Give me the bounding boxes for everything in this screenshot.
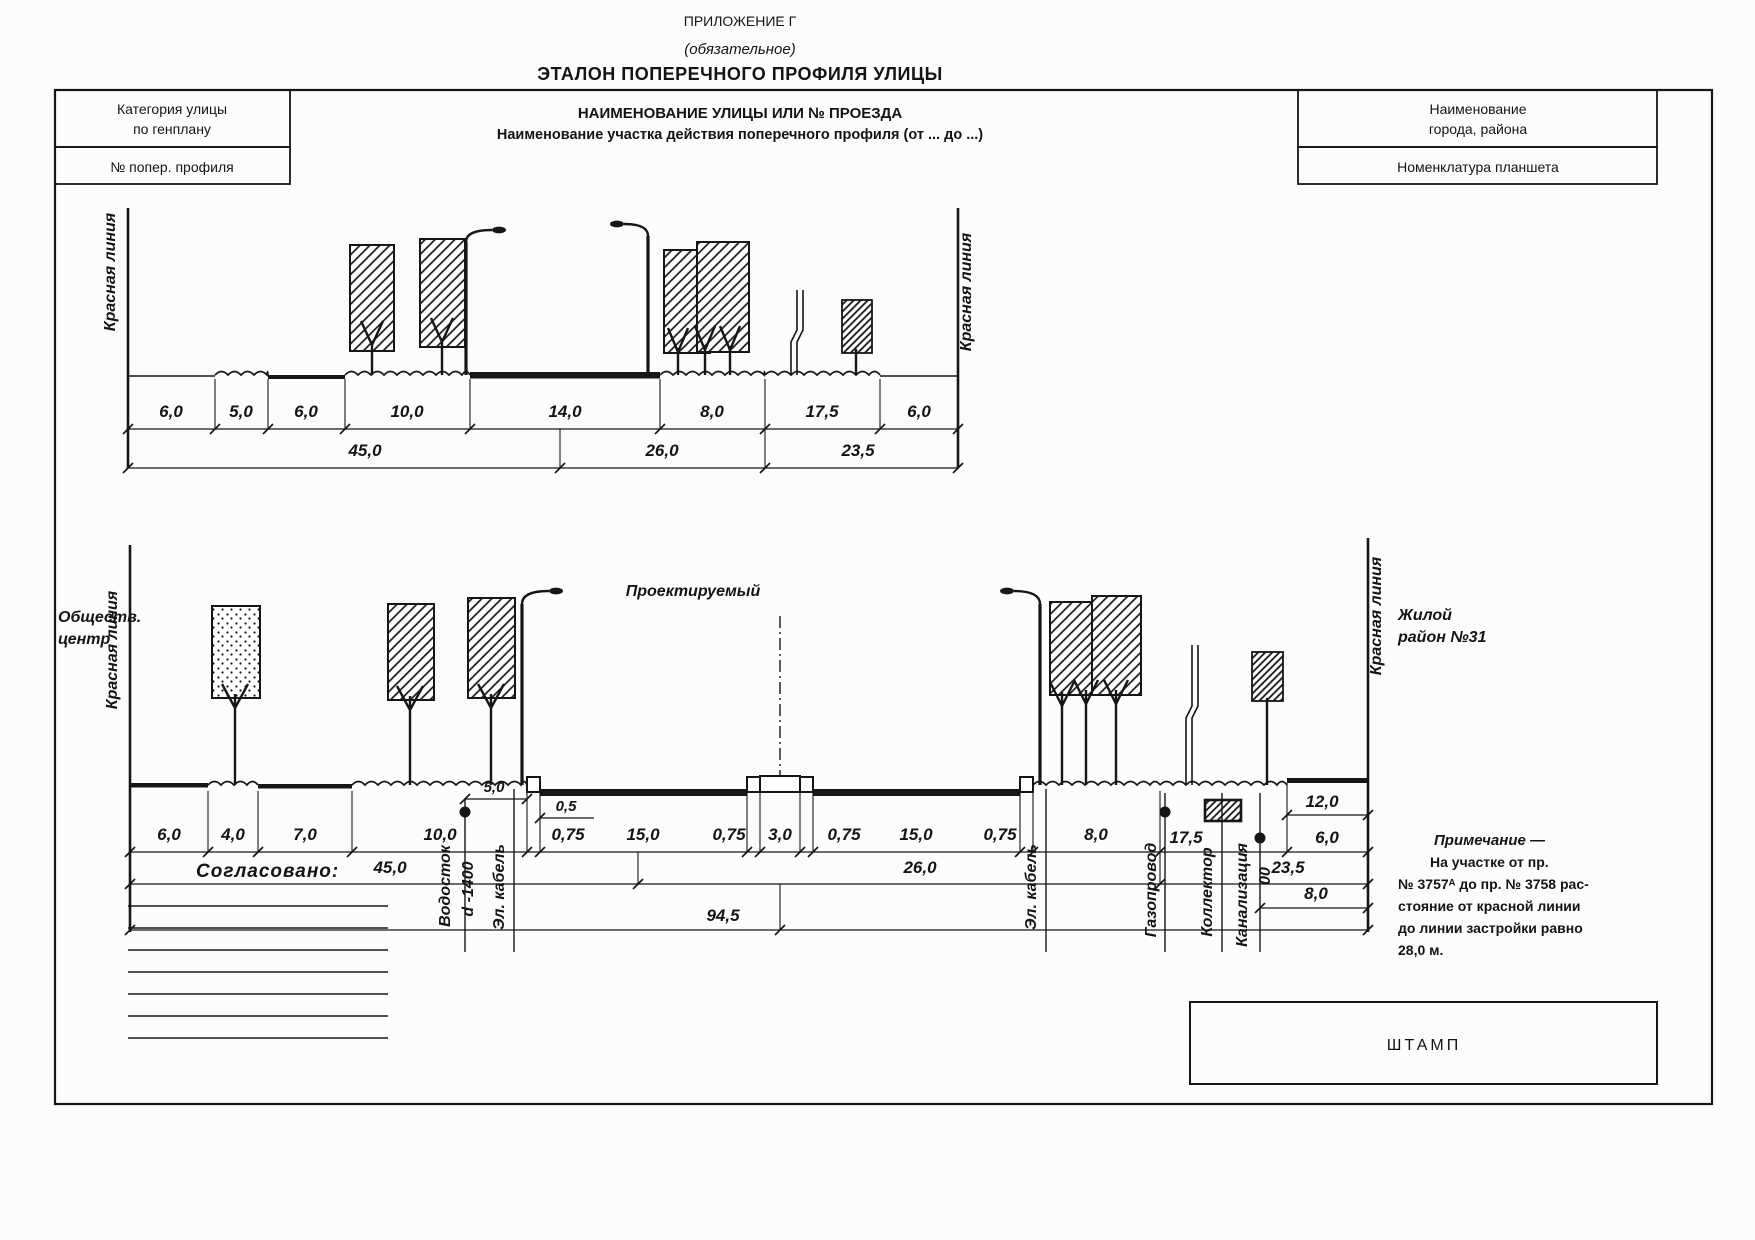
dim-label: 6,0 (157, 825, 181, 844)
dim-label: 10,0 (390, 402, 424, 421)
electric-cable-label: Эл. кабель (491, 844, 508, 930)
lamp-arm (466, 230, 492, 242)
shrub (842, 300, 872, 353)
tree-trunk (478, 684, 504, 785)
category-label-1: Категория улицы (117, 101, 227, 117)
upper-trees (350, 239, 872, 375)
total-dim-label: 26,0 (902, 858, 937, 877)
note-line: № 3757ᴬ до пр. № 3758 рас- (1398, 876, 1589, 892)
tree-crown (350, 245, 394, 351)
red-line-label: Красная линия (102, 212, 119, 331)
public-center-label-2: центр (58, 631, 111, 648)
dim-label: 17,5 (805, 402, 839, 421)
dim-label: 6,0 (294, 402, 318, 421)
dim-label: 15,0 (899, 825, 933, 844)
profile-no-label: № попер. профиля (110, 159, 233, 175)
lamp-arm (624, 224, 648, 236)
dim-label: 8,0 (1304, 884, 1328, 903)
city-label-2: города, района (1429, 121, 1527, 137)
dim-label: 0,75 (712, 825, 746, 844)
note-line: 28,0 м. (1398, 942, 1443, 958)
dim-label: 5,0 (229, 402, 253, 421)
dim-label: 8,0 (1084, 825, 1108, 844)
dim-label: 14,0 (548, 402, 582, 421)
water-drain-diameter-label: d -1400 (460, 861, 477, 916)
note-title: Примечание — (1434, 832, 1546, 849)
dim-label: 15,0 (626, 825, 660, 844)
dim-label: 6,0 (1315, 828, 1339, 847)
nomenclature-label: Номенклатура планшета (1397, 159, 1559, 175)
dim-label: 7,0 (293, 825, 317, 844)
lamp-head-icon (1000, 588, 1014, 595)
lamp-head-icon (549, 588, 563, 595)
sheet-frame (55, 90, 1712, 1104)
dim-label: 6,0 (907, 402, 931, 421)
total-dim-label: 23,5 (1270, 858, 1305, 877)
dim-label: 6,0 (159, 402, 183, 421)
tree-trunk (222, 684, 248, 785)
lamp-arm (522, 591, 549, 604)
lower-roadway-left (540, 789, 747, 796)
water-drain-label: Водосток (437, 844, 454, 927)
stamp-label: ШТАМП (1387, 1037, 1461, 1054)
note-line: до линии застройки равно (1398, 920, 1583, 936)
category-box (55, 90, 290, 147)
utility-labels: Водосток d -1400 Эл. кабель Эл. кабель Г… (437, 843, 1274, 947)
sheet-title: ЭТАЛОН ПОПЕРЕЧНОГО ПРОФИЛЯ УЛИЦЫ (537, 64, 942, 84)
dim-label: 4,0 (220, 825, 245, 844)
title-block-texts: Категория улицы по генплану № попер. про… (110, 101, 1559, 1054)
dimension-marks (123, 372, 1373, 1039)
total-dim-label: 45,0 (372, 858, 407, 877)
break-symbol (791, 290, 803, 375)
street-section-heading: Наименование участка действия поперечног… (497, 127, 983, 143)
upper-profile: 6,0 5,0 6,0 10,0 14,0 8,0 17,5 6,0 45,0 … (128, 221, 958, 460)
dim-label: 3,0 (768, 825, 792, 844)
tree-crown (468, 598, 515, 698)
city-box (1298, 90, 1657, 147)
collector-marker (1205, 800, 1241, 821)
lamp-arm (1014, 591, 1040, 604)
dim-label: 0,5 (556, 798, 578, 815)
collector-label: Коллектор (1199, 847, 1216, 936)
dim-label: 8,0 (700, 402, 724, 421)
dim-label: 10,0 (423, 825, 457, 844)
sewer-label: Канализация (1234, 843, 1251, 947)
upper-dimension-labels: 6,0 5,0 6,0 10,0 14,0 8,0 17,5 6,0 45,0 … (159, 402, 931, 460)
tree-crown-existing (212, 606, 260, 698)
public-center-label-1: Обществ. (58, 609, 141, 626)
city-label-1: Наименование (1429, 101, 1526, 117)
total-dim-label: 45,0 (347, 441, 382, 460)
residential-label-2: район №31 (1397, 629, 1487, 646)
lamp-head-icon (492, 227, 506, 234)
red-line-label: Красная линия (958, 232, 975, 351)
dim-label: 0,75 (551, 825, 585, 844)
break-symbol (1186, 645, 1198, 785)
mandatory-label: (обязательное) (684, 41, 795, 58)
scanned-standard-sheet: ПРИЛОЖЕНИЕ Г (обязательное) ЭТАЛОН ПОПЕР… (0, 0, 1755, 1240)
red-line-label: Красная линия (1368, 556, 1385, 675)
grand-total-label: 94,5 (706, 906, 740, 925)
tree-crown (1092, 596, 1141, 695)
dim-label: 0,75 (827, 825, 861, 844)
note-block: Примечание — На участке от пр. № 3757ᴬ д… (1398, 832, 1589, 958)
total-dim-label: 23,5 (840, 441, 875, 460)
residential-label-1: Жилой (1397, 607, 1452, 624)
note-line: На участке от пр. (1430, 854, 1549, 870)
tree-crown (420, 239, 465, 347)
lower-street-lamps (522, 588, 1040, 785)
agreed-label: Согласовано: (196, 861, 339, 882)
gas-pipe-label: Газопровод (1143, 843, 1160, 938)
median-island (760, 776, 800, 792)
appendix-label: ПРИЛОЖЕНИЕ Г (684, 13, 797, 29)
lower-roadway-right (813, 789, 1020, 796)
total-dim-label: 26,0 (644, 441, 679, 460)
lower-trees (212, 596, 1283, 785)
electric-cable-label: Эл. кабель (1023, 844, 1040, 930)
note-line: стояние от красной линии (1398, 898, 1581, 914)
street-name-heading: НАИМЕНОВАНИЕ УЛИЦЫ ИЛИ № ПРОЕЗДА (578, 105, 903, 122)
category-label-2: по генплану (133, 121, 211, 137)
tree-trunk (1050, 682, 1074, 785)
designed-label: Проектируемый (626, 583, 761, 600)
page-header: ПРИЛОЖЕНИЕ Г (обязательное) ЭТАЛОН ПОПЕР… (537, 13, 942, 84)
dim-label: 0,75 (983, 825, 1017, 844)
shrub (1252, 652, 1283, 701)
upper-roadway (470, 372, 660, 379)
lamp-head-icon (610, 221, 624, 228)
dim-label: 17,5 (1169, 828, 1203, 847)
street-profile-drawing: ПРИЛОЖЕНИЕ Г (обязательное) ЭТАЛОН ПОПЕР… (0, 0, 1755, 1240)
tree-crown (1050, 602, 1095, 695)
tree-crown (388, 604, 434, 700)
upper-street-lamps (466, 221, 648, 375)
dim-label: 12,0 (1305, 792, 1339, 811)
